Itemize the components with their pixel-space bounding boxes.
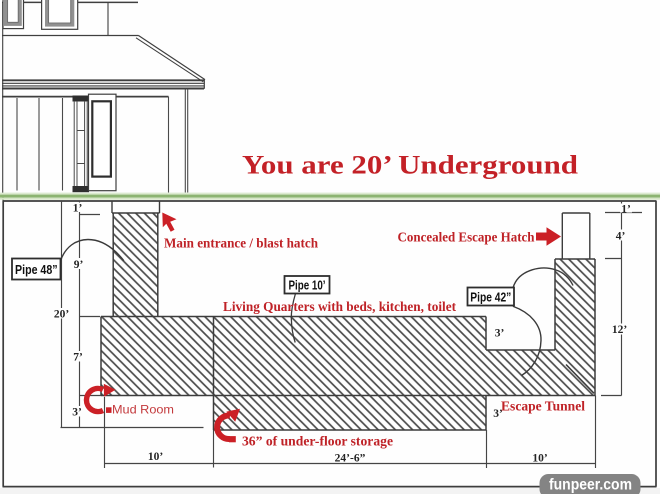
svg-text:Escape Tunnel: Escape Tunnel [501,400,585,415]
svg-text:9’: 9’ [74,259,84,271]
svg-text:4’: 4’ [616,231,626,243]
svg-text:Main entrance / blast hatch: Main entrance / blast hatch [164,237,318,252]
svg-text:Pipe 48”: Pipe 48” [15,262,58,277]
svg-text:3’: 3’ [72,407,82,419]
svg-text:Concealed Escape Hatch: Concealed Escape Hatch [398,231,535,246]
svg-text:12’: 12’ [612,324,627,336]
svg-text:funpeer.com: funpeer.com [549,477,632,494]
svg-text:7’: 7’ [73,352,83,364]
svg-text:You are 20’ Underground: You are 20’ Underground [242,151,579,180]
svg-text:20’: 20’ [54,309,69,321]
svg-text:Living Quarters with beds, kit: Living Quarters with beds, kitchen, toil… [223,300,456,315]
svg-text:Pipe 10’: Pipe 10’ [289,279,326,293]
svg-text:24’-6”: 24’-6” [335,453,366,465]
svg-text:Mud Room: Mud Room [112,403,174,417]
svg-text:1’: 1’ [621,204,631,216]
svg-text:1’: 1’ [73,203,83,215]
svg-text:3’: 3’ [495,328,505,340]
svg-text:Pipe 42”: Pipe 42” [470,291,511,305]
svg-text:36” of under-floor storage: 36” of under-floor storage [242,435,393,450]
svg-text:10’: 10’ [148,451,163,463]
svg-text:10’: 10’ [532,453,547,465]
